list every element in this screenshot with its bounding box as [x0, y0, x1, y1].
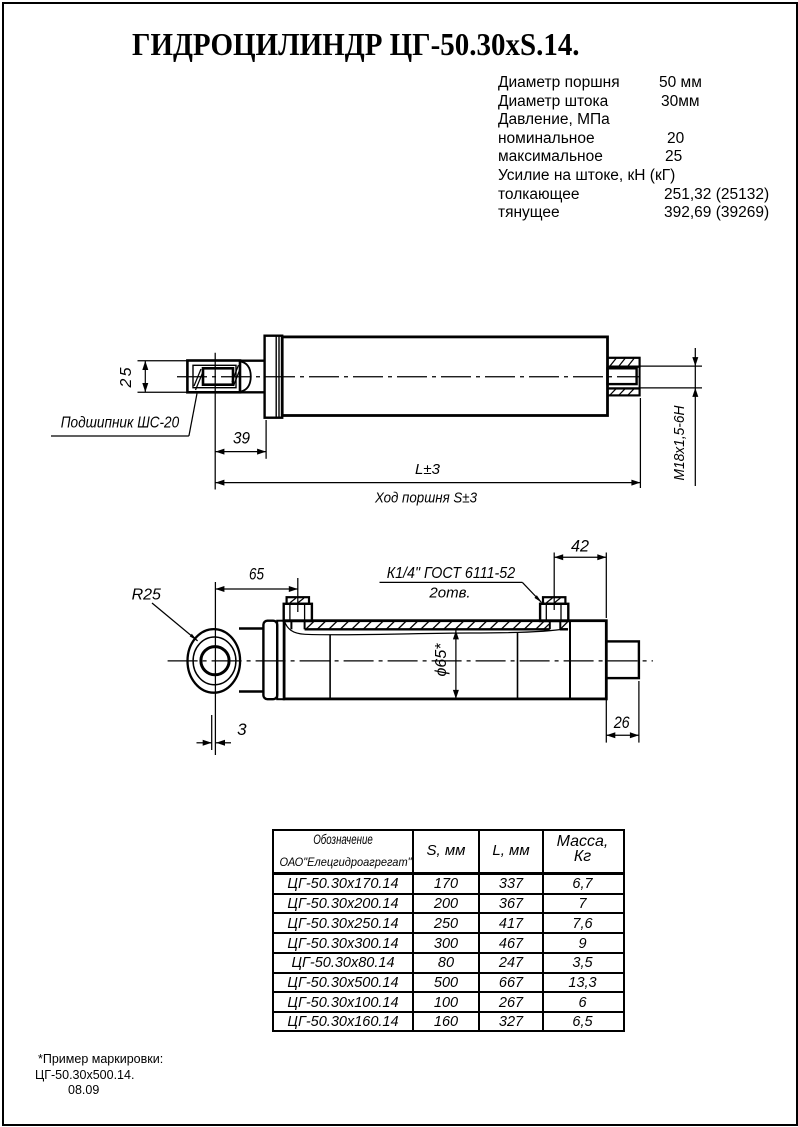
svg-text:26: 26: [613, 713, 630, 732]
svg-text:R25: R25: [132, 587, 161, 604]
svg-text:М18х1,5-6Н: М18х1,5-6Н: [671, 405, 688, 480]
svg-text:К1/4" ГОСТ 6111-52: К1/4" ГОСТ 6111-52: [387, 565, 516, 582]
svg-text:25: 25: [118, 367, 135, 388]
svg-text:39: 39: [233, 429, 250, 448]
svg-text:L±3: L±3: [415, 461, 441, 478]
svg-text:Подшипник ШС-20: Подшипник ШС-20: [61, 415, 180, 432]
svg-text:3: 3: [237, 720, 247, 739]
svg-text:2отв.: 2отв.: [428, 585, 470, 602]
svg-text:ϕ65*: ϕ65*: [433, 643, 450, 677]
svg-text:Ход поршня S±3: Ход поршня S±3: [374, 490, 477, 507]
svg-text:65: 65: [249, 565, 264, 584]
svg-text:42: 42: [571, 537, 590, 556]
